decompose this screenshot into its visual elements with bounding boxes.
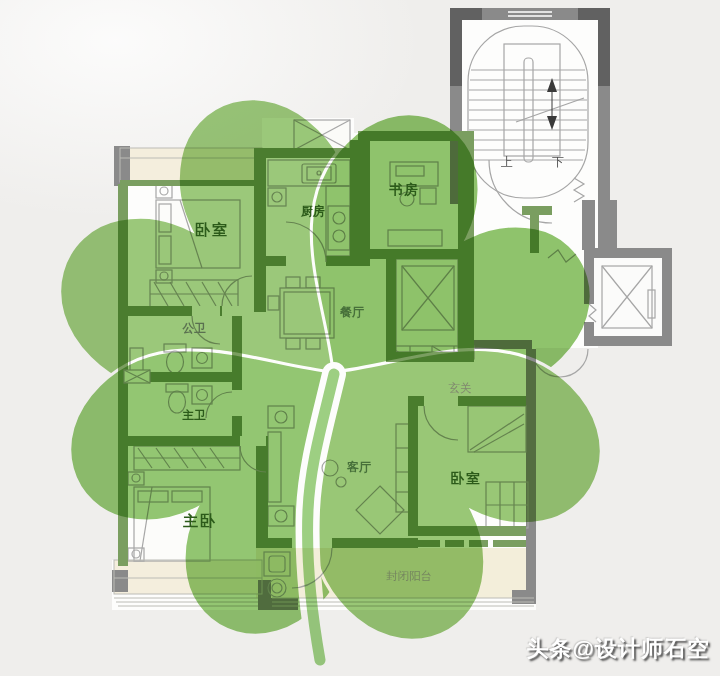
elevator2-floor	[586, 250, 672, 346]
room-label-guest-bathroom: 公卫	[183, 323, 206, 335]
room-label-dining: 餐厅	[340, 306, 364, 318]
room-label-living: 客厅	[347, 461, 371, 473]
floor-plan-svg	[0, 0, 720, 676]
floor-plan-image: 卧室 厨房 书房 餐厅 公卫 主卫 主卧 客厅 玄关 卧室 封闭阳台 上 下 头…	[0, 0, 720, 676]
stairwell-floor	[462, 20, 598, 204]
room-label-master-bedroom: 主卧	[183, 513, 217, 528]
room-label-bedroom-right: 卧室	[451, 472, 482, 486]
room-label-kitchen: 厨房	[301, 205, 325, 217]
room-label-master-bathroom: 主卫	[183, 410, 206, 422]
room-label-study: 书房	[390, 183, 419, 197]
room-label-entry: 玄关	[449, 383, 472, 395]
stair-down-label: 下	[552, 156, 564, 168]
room-label-balcony: 封闭阳台	[386, 571, 432, 583]
watermark: 头条@设计师石空	[527, 634, 710, 664]
room-label-bedroom-top-left: 卧室	[195, 222, 229, 237]
stair-up-label: 上	[501, 156, 513, 168]
